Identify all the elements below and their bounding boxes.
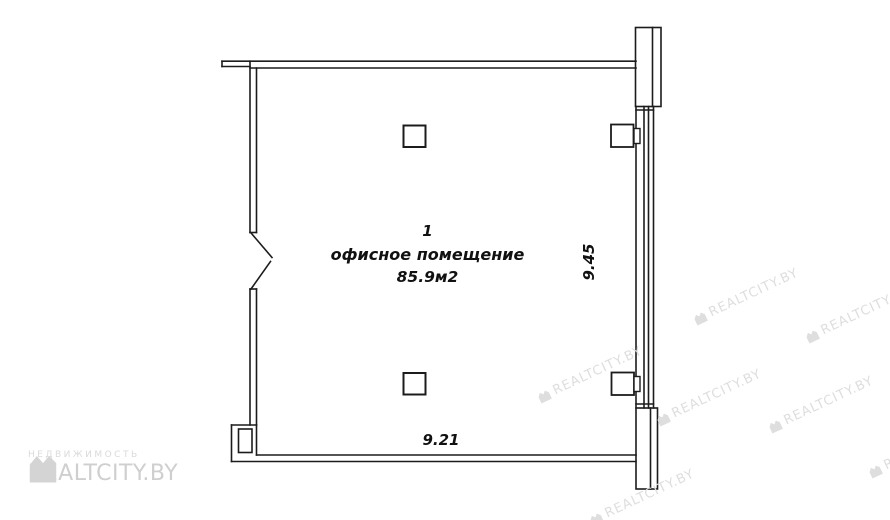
wall-column-top <box>611 125 640 148</box>
bottom-left-alcove <box>232 425 257 462</box>
floorplan-canvas: 1 офисное помещение 85.9м2 9.45 9.21 REA… <box>0 0 890 520</box>
room-column-bottom <box>404 373 426 395</box>
room-annotation: 1 офисное помещение 85.9м2 <box>320 220 535 289</box>
right-curtain-wall <box>636 107 654 409</box>
room-area-label: 85.9м2 <box>320 266 535 289</box>
left-wall-lower <box>250 289 257 425</box>
door-opening <box>251 234 272 290</box>
dimension-width: 9.21 <box>411 430 471 450</box>
top-right-shaft <box>636 28 662 107</box>
wall-column-bottom <box>612 373 641 396</box>
realtcity-logo: НЕДВИЖИМОСТЬ REALTCITY.BY <box>28 451 178 485</box>
top-wall <box>222 61 636 68</box>
house-icon <box>28 451 58 484</box>
room-type-label: офисное помещение <box>320 243 535 266</box>
bottom-wall <box>232 455 637 462</box>
left-wall-upper <box>250 61 257 232</box>
dimension-height: 9.45 <box>579 232 599 292</box>
bottom-right-shaft <box>636 408 658 489</box>
room-column-top <box>404 126 426 148</box>
room-number: 1 <box>320 220 535 243</box>
